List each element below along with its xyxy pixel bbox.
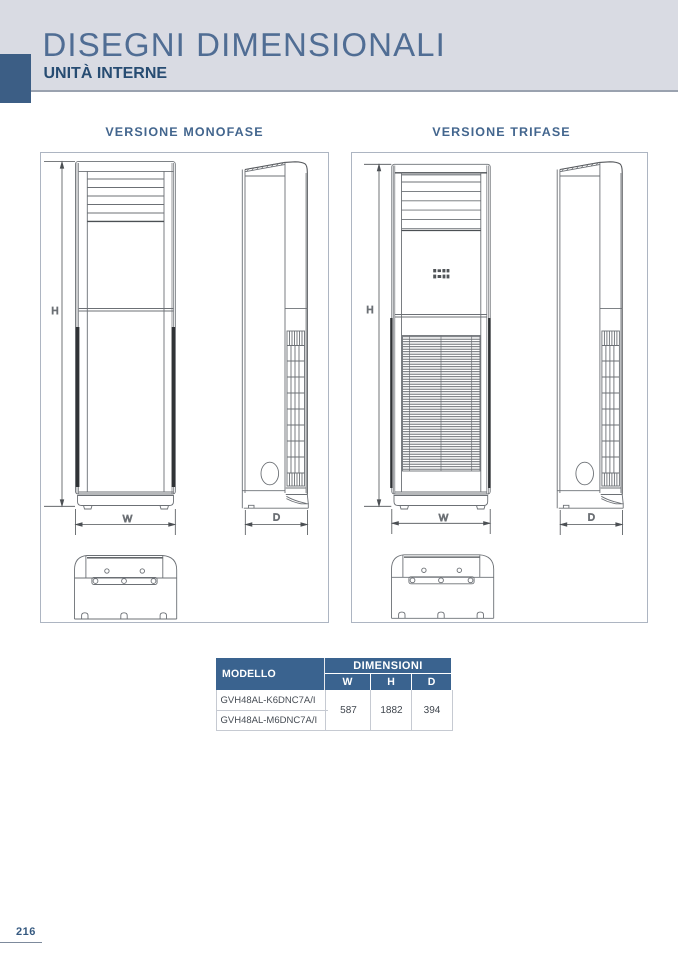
svg-text:D: D [588, 513, 595, 524]
svg-text:H: H [366, 305, 373, 316]
svg-text:W: W [439, 513, 449, 524]
svg-text:D: D [273, 513, 280, 524]
svg-text:W: W [123, 514, 133, 525]
svg-text:H: H [51, 306, 58, 317]
